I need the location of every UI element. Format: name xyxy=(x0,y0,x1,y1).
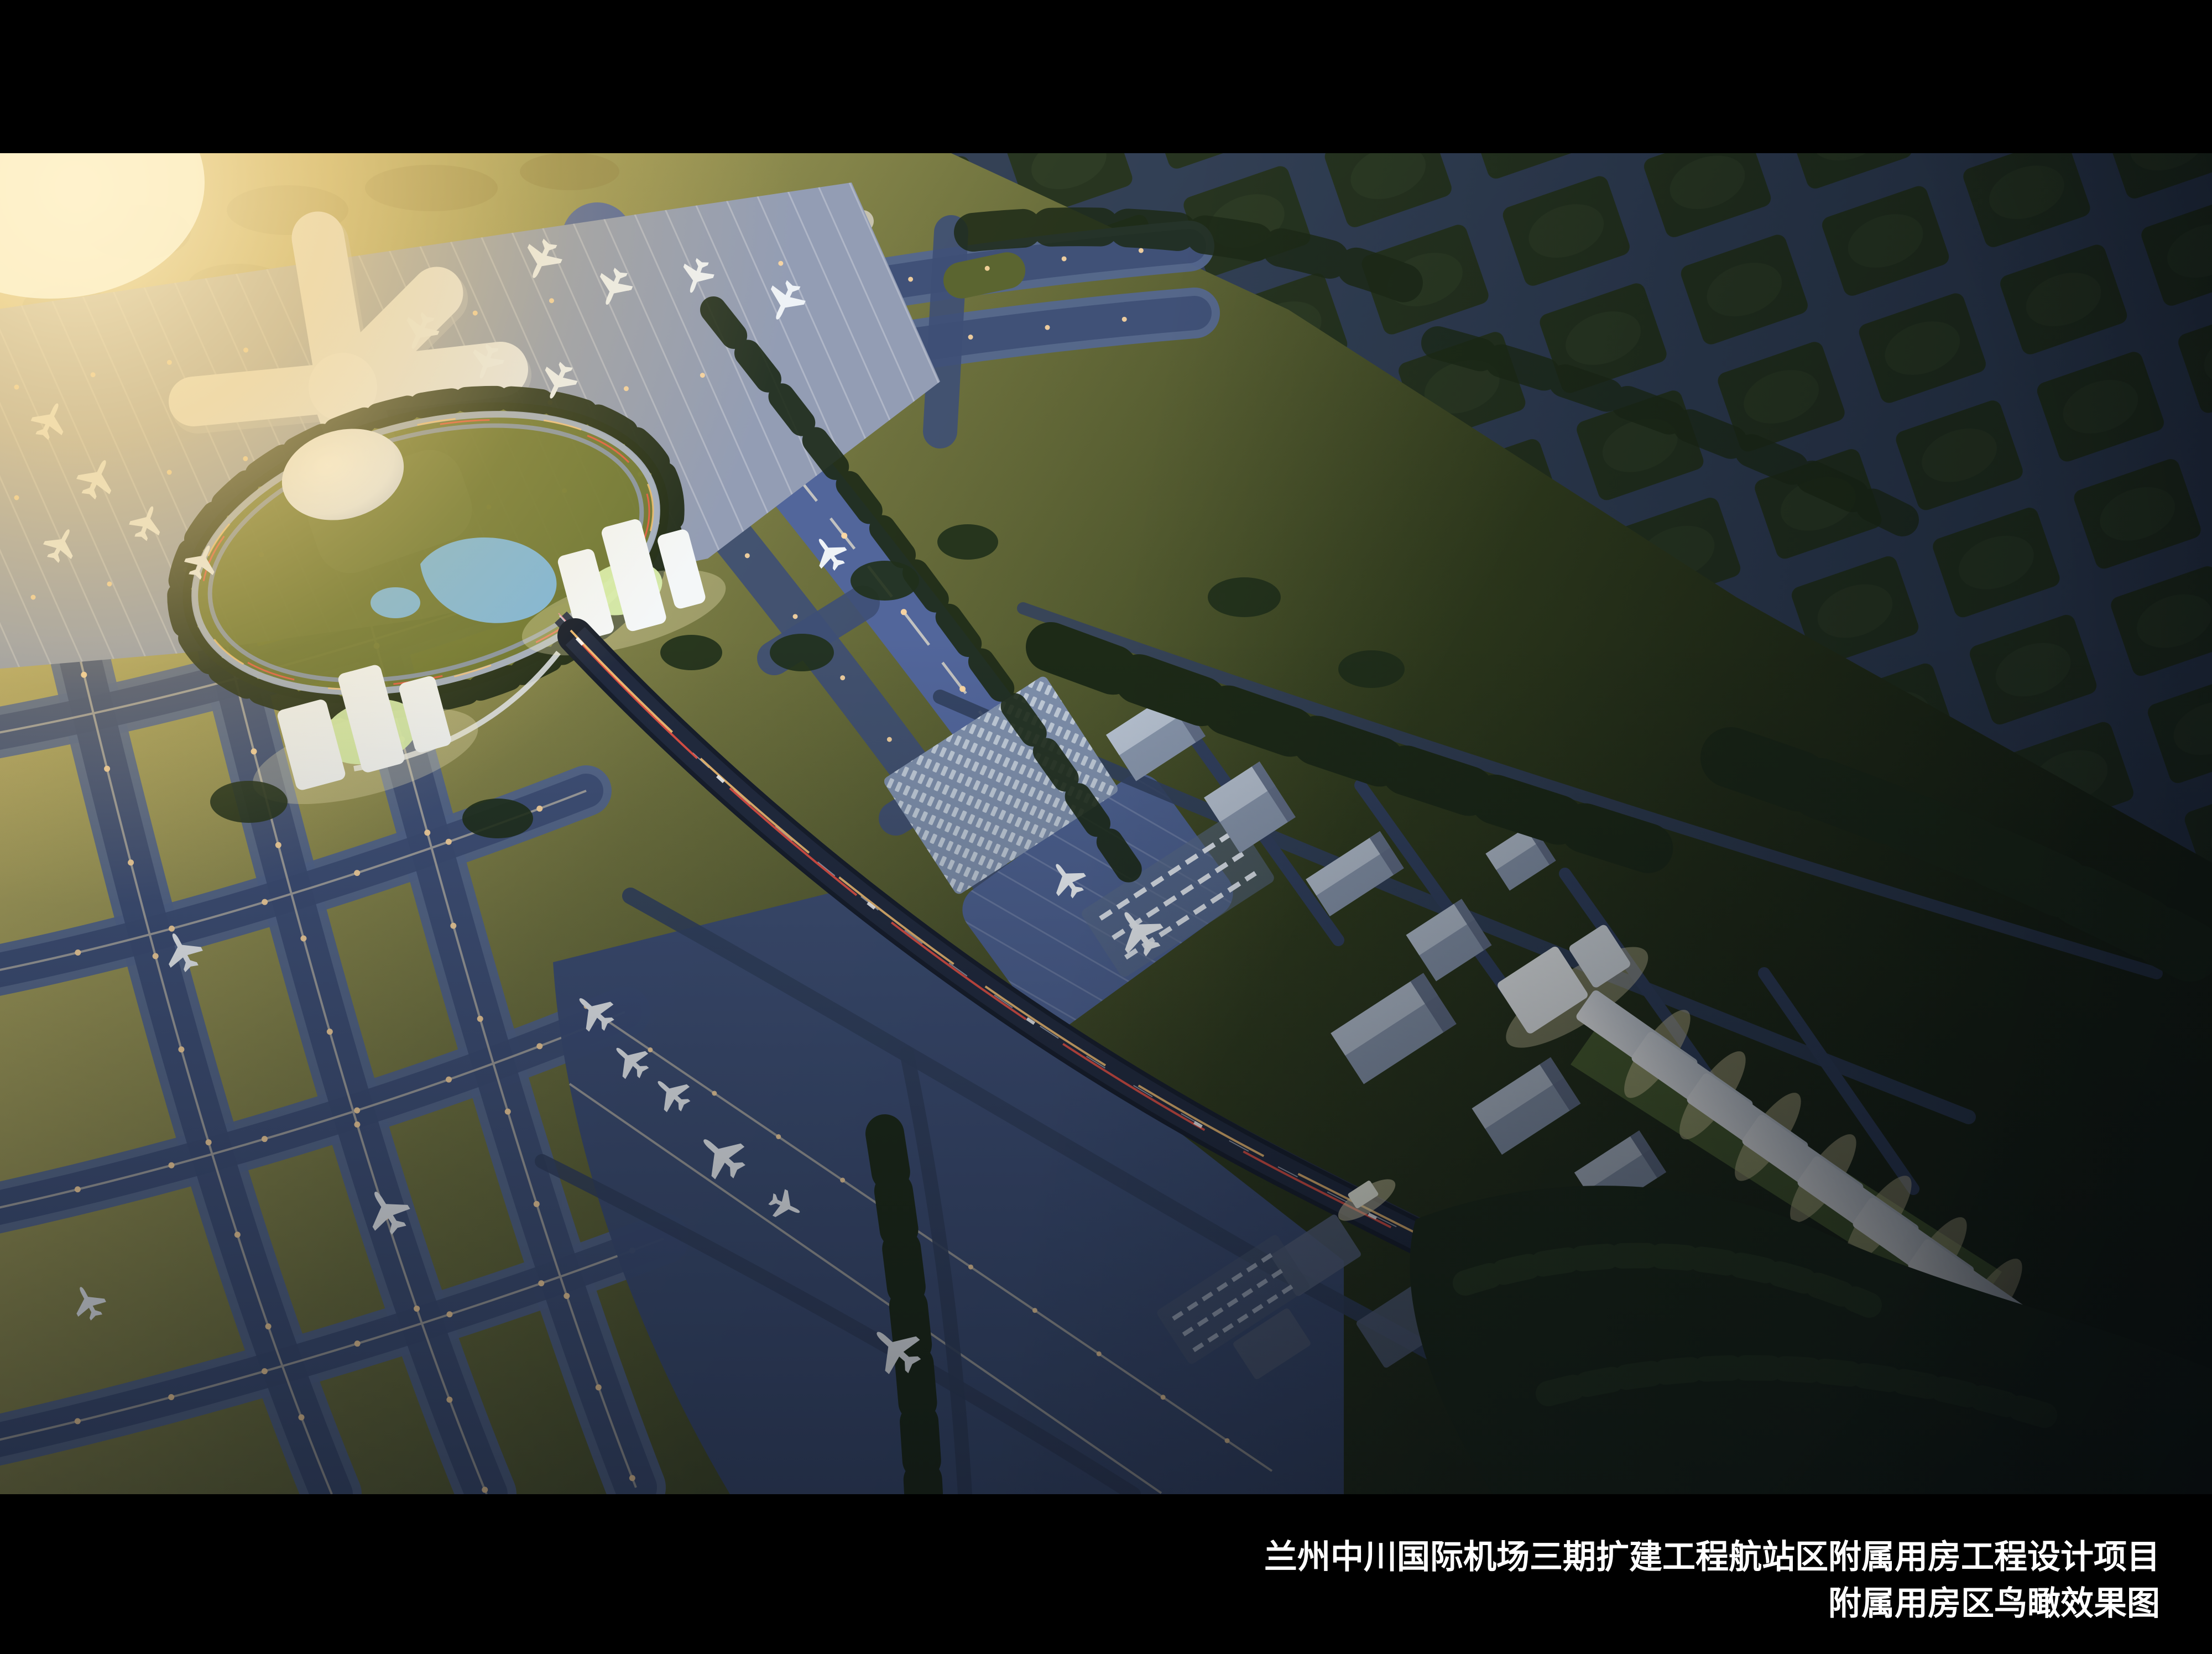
photo-area xyxy=(0,66,2212,1500)
caption-line-2: 附属用房区鸟瞰效果图 xyxy=(1828,1585,2160,1622)
rendering-page: 兰州中川国际机场三期扩建工程航站区附属用房工程设计项目 附属用房区鸟瞰效果图 xyxy=(0,0,2212,1654)
sunrise-glow xyxy=(0,153,2212,1494)
caption-line-1: 兰州中川国际机场三期扩建工程航站区附属用房工程设计项目 xyxy=(1264,1538,2160,1575)
airport-aerial-rendering: 兰州中川国际机场三期扩建工程航站区附属用房工程设计项目 附属用房区鸟瞰效果图 xyxy=(0,0,2212,1654)
